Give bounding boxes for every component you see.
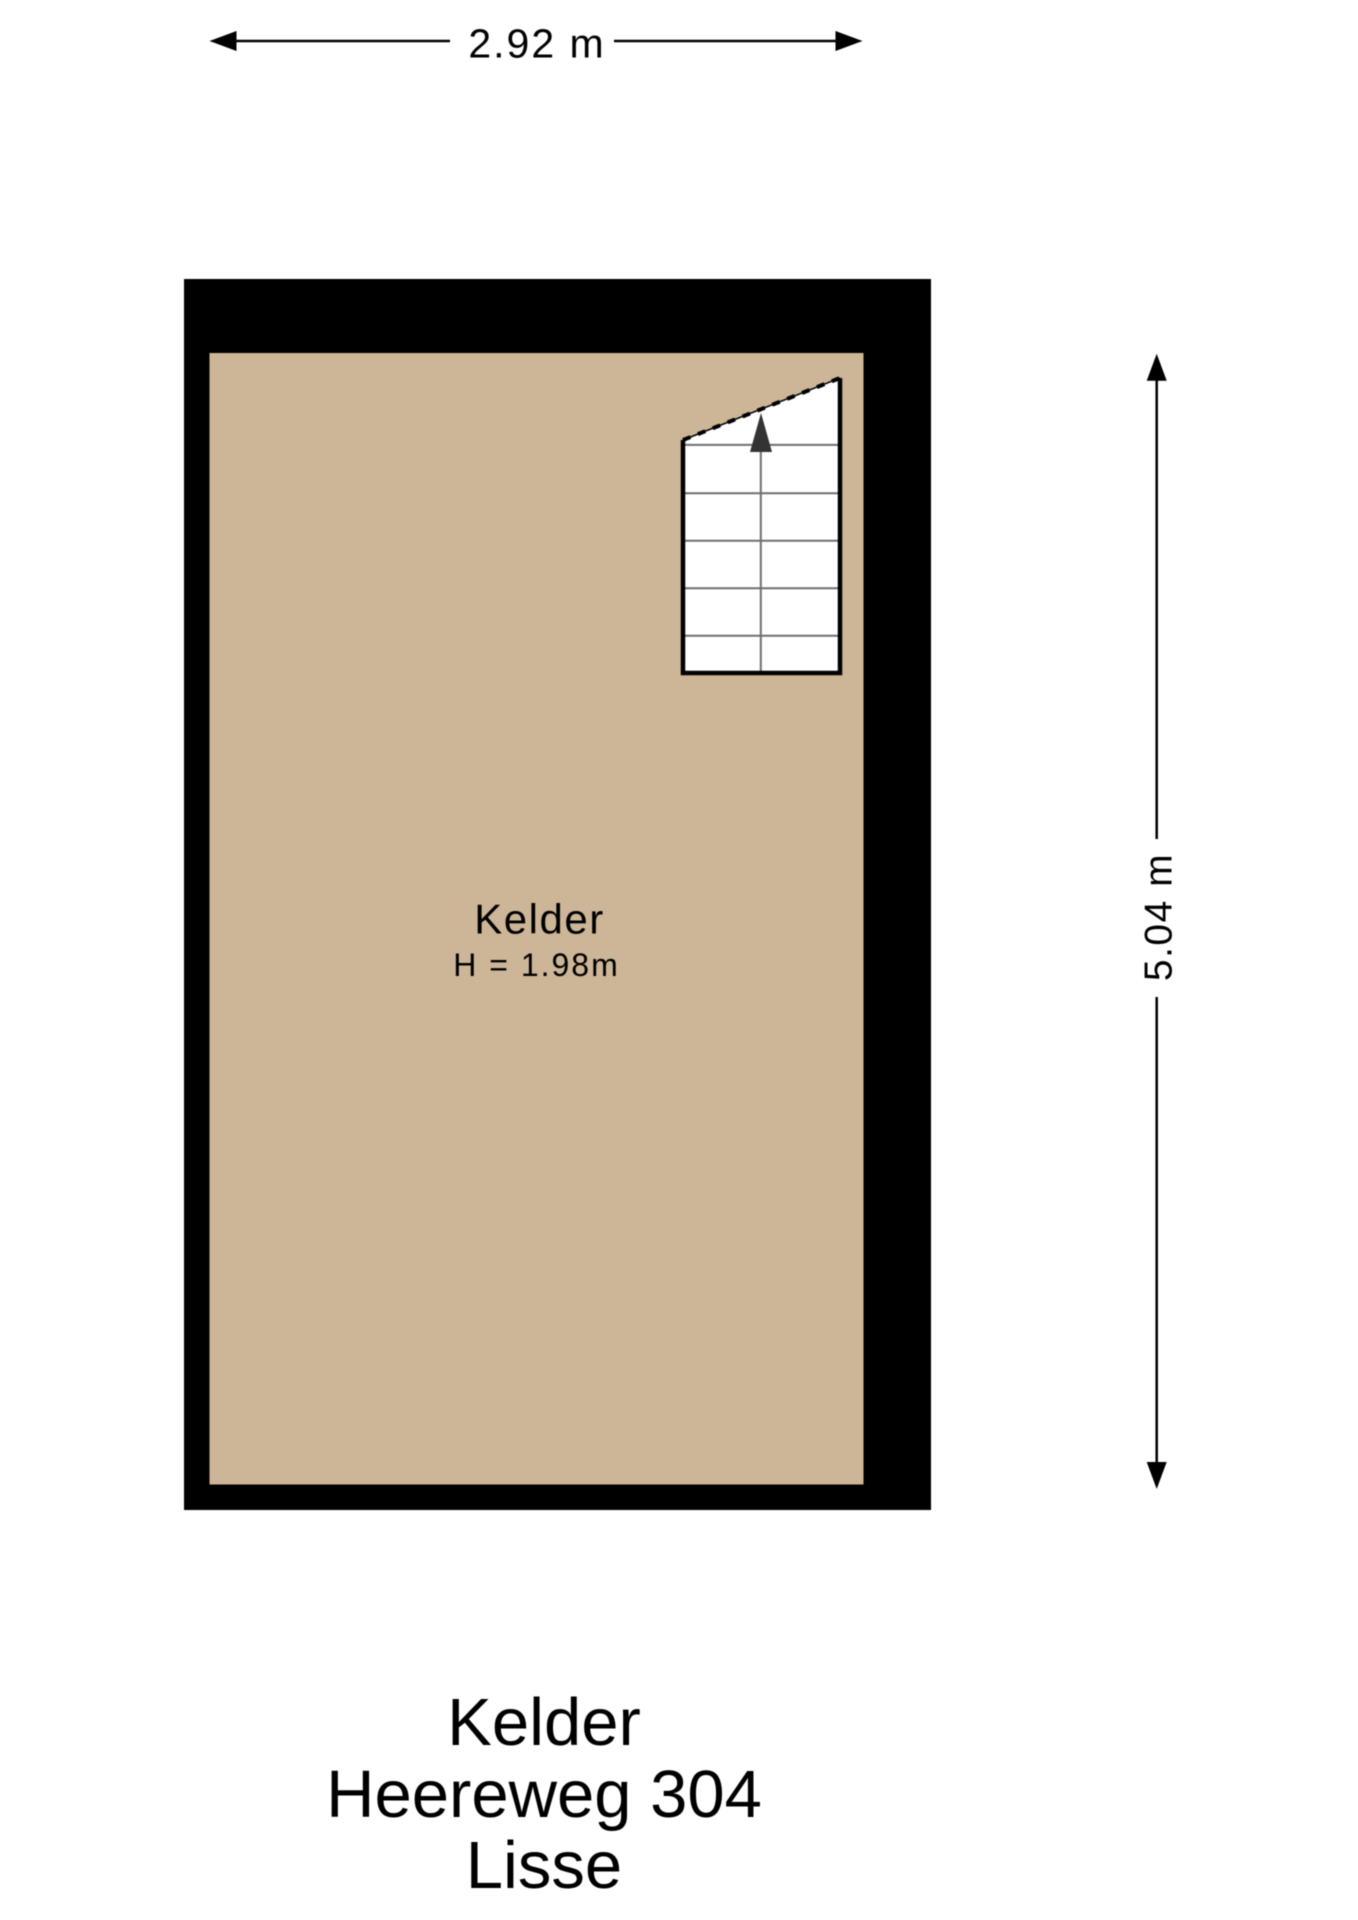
svg-text:Kelder: Kelder [474, 896, 604, 943]
svg-text:Lisse: Lisse [466, 1828, 622, 1903]
svg-text:Kelder: Kelder [447, 1685, 641, 1760]
svg-text:5.04 m: 5.04 m [1138, 853, 1181, 981]
svg-text:2.92 m: 2.92 m [468, 21, 605, 67]
svg-text:H = 1.98m: H = 1.98m [453, 947, 620, 983]
svg-text:Heereweg 304: Heereweg 304 [326, 1757, 762, 1832]
